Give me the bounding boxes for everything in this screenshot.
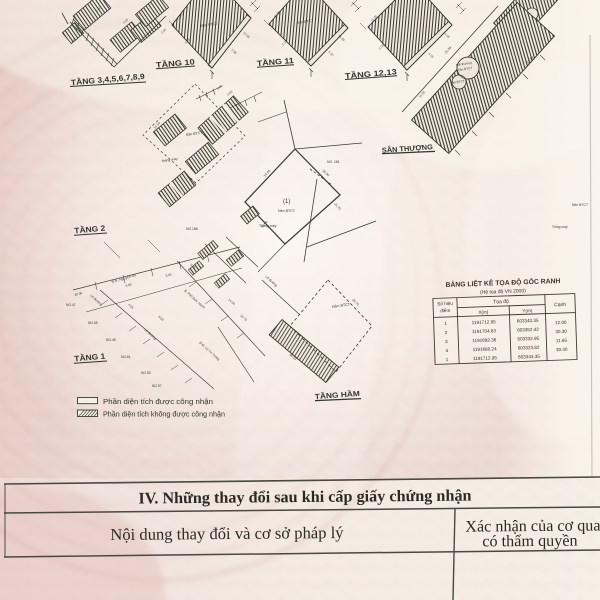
svg-text:Số hiệu: Số hiệu — [437, 301, 453, 307]
svg-text:Nền BTCT: Nền BTCT — [278, 209, 296, 213]
svg-text:Y(m): Y(m) — [522, 308, 533, 313]
svg-text:NG.55: NG.55 — [88, 321, 98, 325]
svg-text:11.65: 11.65 — [556, 338, 568, 343]
svg-text:NG.57: NG.57 — [152, 384, 162, 388]
svg-text:603332.95: 603332.95 — [517, 336, 539, 342]
svg-text:30.30: 30.30 — [555, 329, 567, 334]
svg-text:Nền BTCT: Nền BTCT — [572, 203, 588, 207]
svg-text:NG.47: NG.47 — [66, 303, 76, 307]
svg-text:NG.188: NG.188 — [186, 227, 198, 231]
svg-text:IV. Những thay đổi sau khi cấp: IV. Những thay đổi sau khi cấp giấy chứn… — [138, 487, 471, 508]
svg-text:Trống máy: Trống máy — [552, 225, 568, 229]
svg-text:(1): (1) — [283, 199, 290, 205]
svg-text:Tọa độ: Tọa độ — [493, 299, 509, 306]
svg-text:có thẩm quyền: có thẩm quyền — [482, 532, 577, 551]
svg-text:1191712.95: 1191712.95 — [473, 355, 498, 361]
svg-text:NG. 181: NG. 181 — [327, 160, 340, 164]
svg-text:1191682.36: 1191682.36 — [472, 337, 497, 343]
svg-text:1191712.95: 1191712.95 — [472, 319, 497, 325]
svg-text:NG.59: NG.59 — [141, 371, 151, 375]
svg-text:NG.61: NG.61 — [121, 355, 131, 359]
svg-text:X(m): X(m) — [478, 310, 489, 315]
svg-text:603352.42: 603352.42 — [517, 327, 539, 333]
svg-text:1191680.24: 1191680.24 — [473, 346, 498, 352]
svg-text:30.30: 30.30 — [556, 347, 568, 352]
svg-text:Phần diện tích được công nhận: Phần diện tích được công nhận — [103, 397, 213, 406]
svg-text:điểm: điểm — [440, 307, 450, 313]
svg-text:603343.35: 603343.35 — [518, 354, 540, 360]
svg-text:603323.82: 603323.82 — [518, 345, 540, 351]
svg-text:Nội dung thay đổi và cơ sở phá: Nội dung thay đổi và cơ sở pháp lý — [110, 523, 344, 544]
svg-text:1191704.83: 1191704.83 — [472, 328, 497, 334]
svg-text:Phần diện tích không được công: Phần diện tích không được công nhận — [103, 410, 225, 419]
svg-text:Cạnh: Cạnh — [554, 302, 566, 308]
svg-text:603343.35: 603343.35 — [517, 318, 539, 324]
svg-text:NG.48: NG.48 — [106, 338, 116, 342]
svg-text:12.00: 12.00 — [555, 320, 567, 325]
